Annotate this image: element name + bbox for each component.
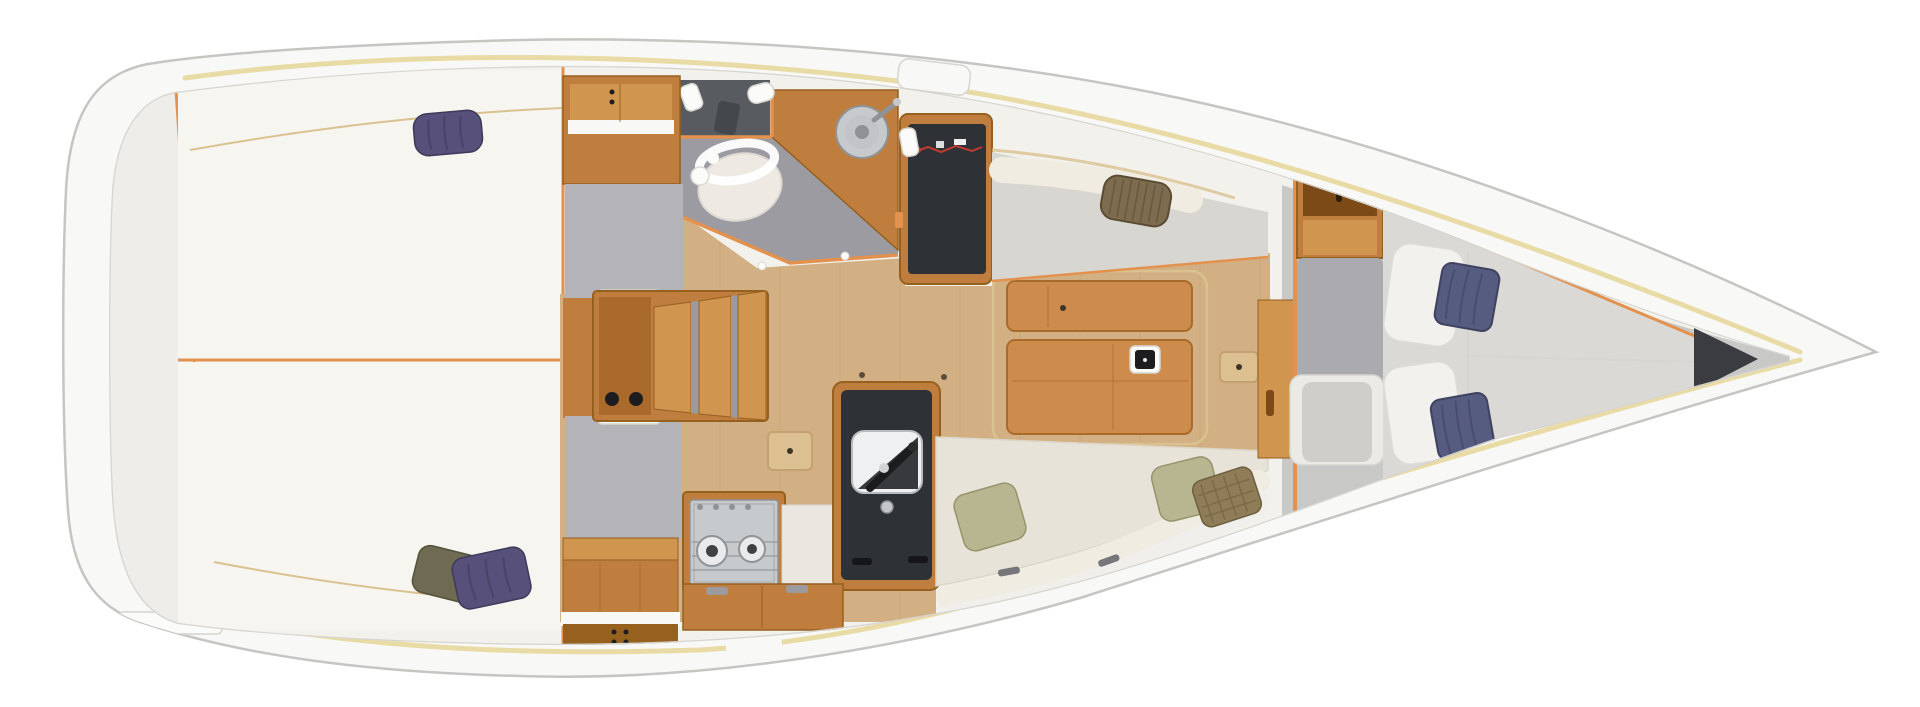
aft-berth-starboard [178, 70, 564, 360]
floor-fastener [941, 374, 947, 380]
interior [98, 58, 1790, 658]
pillow-purple-starboard [412, 109, 483, 157]
aft-cabin-entry-starboard [565, 184, 683, 304]
companionway-steps [593, 291, 768, 421]
galley-drawers [683, 584, 843, 630]
locker-handle [852, 558, 872, 565]
table-leaf-starboard [1007, 281, 1192, 331]
door-latch [841, 252, 849, 260]
floor-fastener [859, 372, 865, 378]
hatch-ring-pull [787, 448, 793, 454]
toilet-pump [691, 167, 709, 185]
stove [683, 492, 785, 592]
cabinet-handle [610, 90, 615, 95]
galley-shelf [563, 538, 678, 562]
aft-cabin-port [178, 362, 564, 630]
locker-handle [908, 556, 928, 563]
panel-connector [954, 139, 966, 145]
step [738, 291, 766, 420]
floor-plan-stage [0, 0, 1920, 707]
table-leaf-port [1007, 340, 1192, 434]
boat-floor-plan [0, 0, 1920, 707]
hatch-ring-pull [1236, 364, 1242, 370]
door-latch [758, 262, 766, 270]
step [699, 296, 731, 417]
drain [881, 501, 893, 513]
galley-sink-unit [833, 382, 940, 590]
aft-cabin-starboard [178, 70, 564, 360]
panel-connector [936, 141, 944, 148]
step [654, 302, 691, 413]
saloon-end-cabinet [1258, 300, 1294, 458]
galley-fiddle-rail [561, 612, 680, 626]
pillow-navy-starboard [1433, 261, 1501, 332]
cabinet-handle [1266, 390, 1274, 416]
galley-worktop [782, 505, 838, 585]
drawer-handle [706, 587, 728, 595]
table-compass-instrument [1130, 346, 1160, 373]
table-fitting [1060, 305, 1066, 311]
engine-vent [629, 392, 643, 406]
table-bracket [895, 212, 903, 228]
engine-vent [605, 392, 619, 406]
companionway-side-panel [563, 298, 595, 418]
aft-cabin-entry-port [565, 412, 681, 540]
saloon-table [993, 271, 1207, 444]
drawer-handle [786, 585, 808, 593]
galley-cabinet-front [563, 560, 678, 616]
aft-wardrobe [563, 76, 680, 184]
nav-station [895, 114, 992, 284]
forward-bench [1290, 375, 1384, 465]
cabinet-handle [610, 100, 615, 105]
